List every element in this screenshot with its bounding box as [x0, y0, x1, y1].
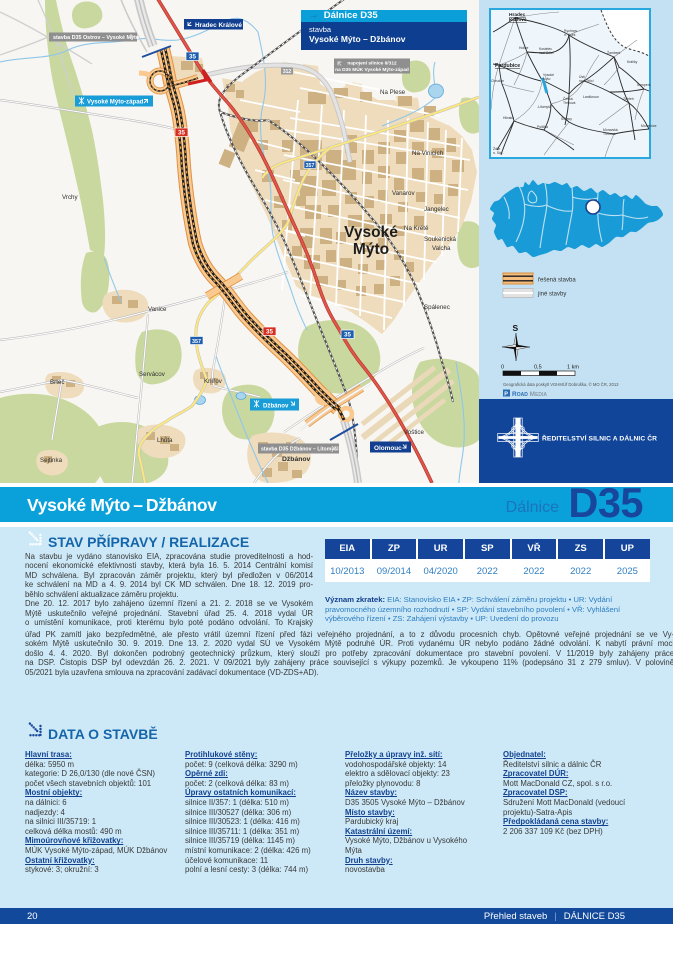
- svg-text:Zábřeh: Zábřeh: [623, 97, 634, 101]
- svg-text:nad Orlicí: nad Orlicí: [579, 79, 594, 83]
- svg-text:Voštice: Voštice: [404, 429, 425, 436]
- svg-text:Na Vinicích: Na Vinicích: [412, 150, 444, 157]
- svg-text:357: 357: [192, 339, 201, 345]
- svg-text:35: 35: [266, 329, 273, 336]
- svg-text:Šumperk: Šumperk: [637, 82, 651, 87]
- svg-text:Na Plese: Na Plese: [380, 89, 406, 96]
- svg-text:Hlinsko: Hlinsko: [503, 116, 514, 120]
- svg-text:ROAD MEDIA: ROAD MEDIA: [512, 391, 547, 398]
- svg-text:0: 0: [501, 365, 504, 371]
- svg-text:Třebová: Třebová: [563, 101, 576, 105]
- svg-text:Na Krétě: Na Krétě: [404, 225, 429, 232]
- svg-text:napojení silnice II/312: napojení silnice II/312: [347, 61, 397, 67]
- svg-text:Vanice: Vanice: [148, 306, 167, 313]
- svg-text:na D35 MÚK Vysoké Mýto-západ: na D35 MÚK Vysoké Mýto-západ: [335, 66, 409, 73]
- svg-text:Džbánov: Džbánov: [282, 456, 311, 463]
- svg-text:Chrudim: Chrudim: [491, 79, 504, 83]
- svg-text:Králíky: Králíky: [627, 60, 638, 64]
- svg-text:Svitavy: Svitavy: [561, 117, 572, 121]
- svg-text:řešená stavba: řešená stavba: [538, 278, 576, 284]
- svg-text:n. Kněž.: n. Kněž.: [564, 33, 576, 37]
- svg-text:Brteč: Brteč: [50, 379, 64, 386]
- svg-text:Vysoké Mýto-západ: Vysoké Mýto-západ: [87, 99, 144, 106]
- svg-text:ŘEDITELSTVÍ SILNIC A DÁLNIC ČR: ŘEDITELSTVÍ SILNIC A DÁLNIC ČR: [542, 434, 657, 443]
- svg-text:Žamberk: Žamberk: [607, 50, 621, 55]
- svg-text:Džbánov: Džbánov: [263, 402, 289, 409]
- svg-text:Vysoké: Vysoké: [344, 224, 398, 241]
- svg-text:0,5: 0,5: [534, 365, 542, 371]
- svg-text:Mýto: Mýto: [543, 77, 550, 81]
- svg-text:P: P: [504, 391, 508, 397]
- svg-text:35: 35: [189, 54, 196, 61]
- svg-text:Jangelec: Jangelec: [424, 206, 449, 213]
- svg-text:Hradec Králové: Hradec Králové: [195, 22, 242, 29]
- svg-text:1 km: 1 km: [567, 365, 579, 371]
- svg-text:Mýto: Mýto: [353, 241, 389, 258]
- svg-text:S: S: [513, 323, 519, 333]
- svg-text:n. Sáz.: n. Sáz.: [493, 151, 504, 155]
- svg-text:Knířov: Knířov: [204, 378, 223, 385]
- svg-text:Vrchy: Vrchy: [62, 194, 78, 201]
- svg-text:stavba D35 Džbánov – Litomyšl: stavba D35 Džbánov – Litomyšl: [261, 447, 339, 453]
- svg-text:Lanškroun: Lanškroun: [583, 95, 599, 99]
- svg-text:35: 35: [344, 332, 351, 339]
- svg-text:Spálenec: Spálenec: [424, 304, 450, 311]
- svg-text:Geografická data poskytl VGHMÚ: Geografická data poskytl VGHMÚř Dobruška…: [503, 382, 619, 387]
- svg-text:Pardubice: Pardubice: [495, 63, 520, 69]
- svg-text:Mohelnice: Mohelnice: [641, 124, 657, 128]
- svg-text:Holice: Holice: [519, 46, 529, 50]
- svg-text:312: 312: [283, 69, 292, 75]
- svg-text:Lhůta: Lhůta: [157, 437, 173, 444]
- svg-text:Vanarov: Vanarov: [392, 190, 415, 197]
- svg-text:357: 357: [306, 163, 315, 169]
- svg-text:stavba D35 Ostrov – Vysoké Mýt: stavba D35 Ostrov – Vysoké Mýto: [53, 35, 140, 41]
- svg-text:Třebová: Třebová: [603, 132, 616, 136]
- svg-text:Soukenická: Soukenická: [424, 236, 457, 243]
- svg-text:Olomouc: Olomouc: [374, 445, 402, 452]
- svg-text:Sejtinka: Sejtinka: [40, 457, 63, 464]
- svg-text:nad Orlicí: nad Orlicí: [539, 51, 554, 55]
- svg-text:jiné stavby: jiné stavby: [537, 292, 566, 298]
- svg-text:Servácov: Servácov: [139, 371, 166, 378]
- svg-text:-Litomyšl: -Litomyšl: [537, 105, 551, 109]
- svg-text:Polička: Polička: [537, 125, 548, 129]
- svg-text:Králové: Králové: [509, 17, 527, 23]
- svg-text:35: 35: [178, 130, 185, 137]
- svg-text:Valcha: Valcha: [432, 245, 451, 252]
